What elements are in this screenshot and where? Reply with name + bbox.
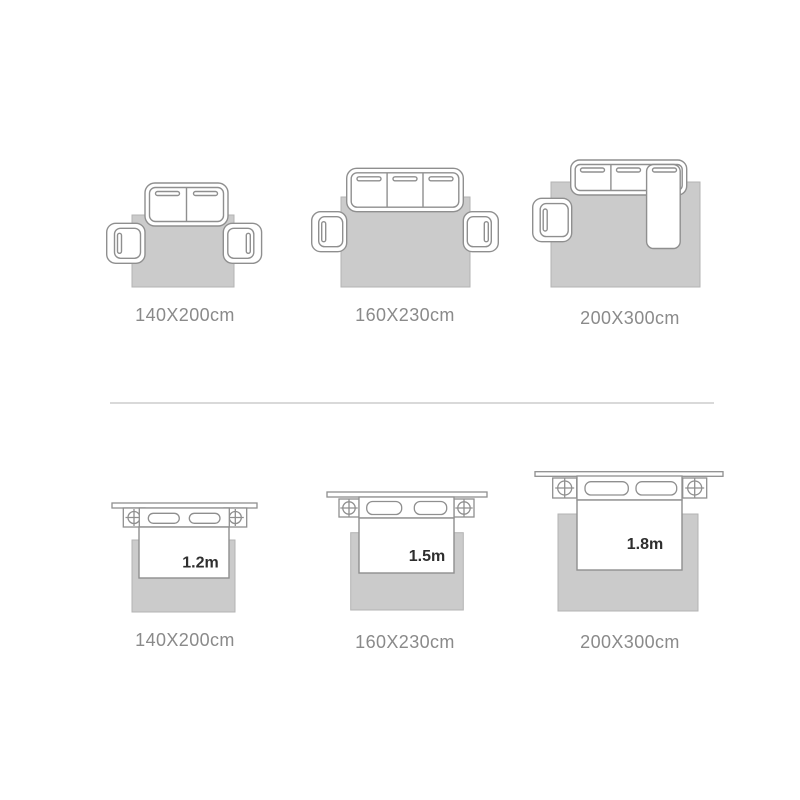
armchair-icon [463,212,498,252]
size-label: 140X200cm [95,630,275,651]
nightstand-icon [553,478,577,498]
armchair-icon [533,198,572,241]
bed-icon [577,500,682,570]
nightstand-icon [339,499,359,517]
living-room-diagram-medium [300,160,510,297]
living-room-layout-160x230: 160X230cm [300,160,510,330]
living-room-diagram-large [525,150,735,297]
pillows-icon [577,476,682,500]
headboard-icon [327,492,487,497]
armchair-icon [107,223,145,263]
bed-width-label: 1.2m [182,555,218,572]
living-room-diagram-small [95,165,275,297]
size-label: 140X200cm [95,305,275,326]
size-label: 200X300cm [525,632,735,653]
bedroom-layout-140x200: 1.2m 140X200cm [95,490,275,655]
size-label: 160X230cm [305,632,505,653]
living-room-layout-140x200: 140X200cm [95,165,275,330]
size-label: 200X300cm [525,308,735,329]
bedroom-diagram-medium: 1.5m [305,480,505,622]
living-room-layout-200x300: 200X300cm [525,150,735,330]
pillows-icon [359,497,454,518]
armchair-icon [312,212,347,252]
headboard-icon [112,503,257,508]
pillows-icon [139,508,229,527]
rug-size-guide: 140X200cm [0,0,800,800]
bedroom-diagram-large: 1.8m [525,460,735,622]
chaise-shape [647,165,681,249]
section-divider [110,402,714,404]
nightstand-icon [454,499,474,517]
size-label: 160X230cm [300,305,510,326]
armchair-icon [223,223,261,263]
sofa-icon [347,168,464,211]
bed-width-label: 1.8m [627,536,663,553]
nightstand-icon [683,478,707,498]
bed-width-label: 1.5m [409,548,445,565]
bedroom-layout-160x230: 1.5m 160X230cm [305,480,505,660]
sofa-icon [145,183,228,226]
bedroom-layout-200x300: 1.8m 200X300cm [525,460,735,660]
bedroom-diagram-small: 1.2m [95,490,275,622]
